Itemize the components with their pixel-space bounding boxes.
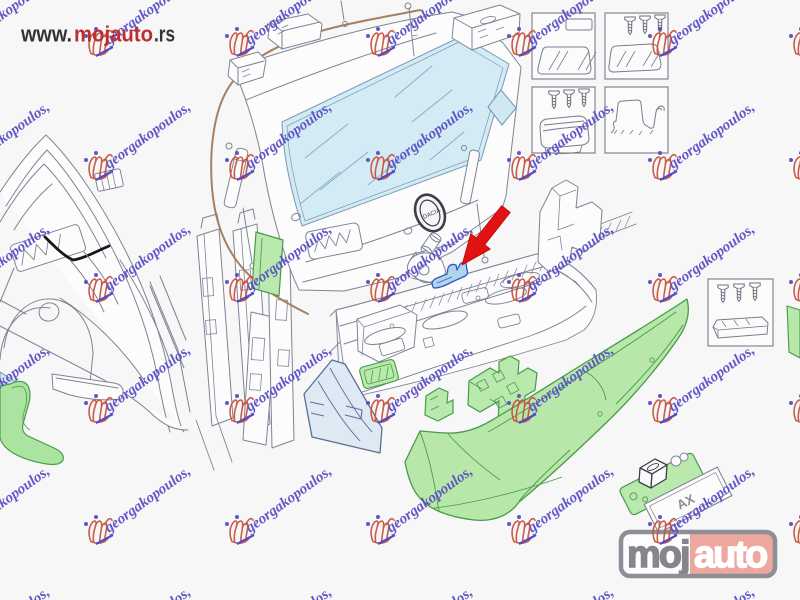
svg-text:.rs: .rs bbox=[154, 22, 175, 47]
svg-text:mojauto: mojauto bbox=[74, 22, 153, 47]
svg-text:auto: auto bbox=[694, 534, 767, 576]
svg-text:www.: www. bbox=[20, 22, 72, 47]
